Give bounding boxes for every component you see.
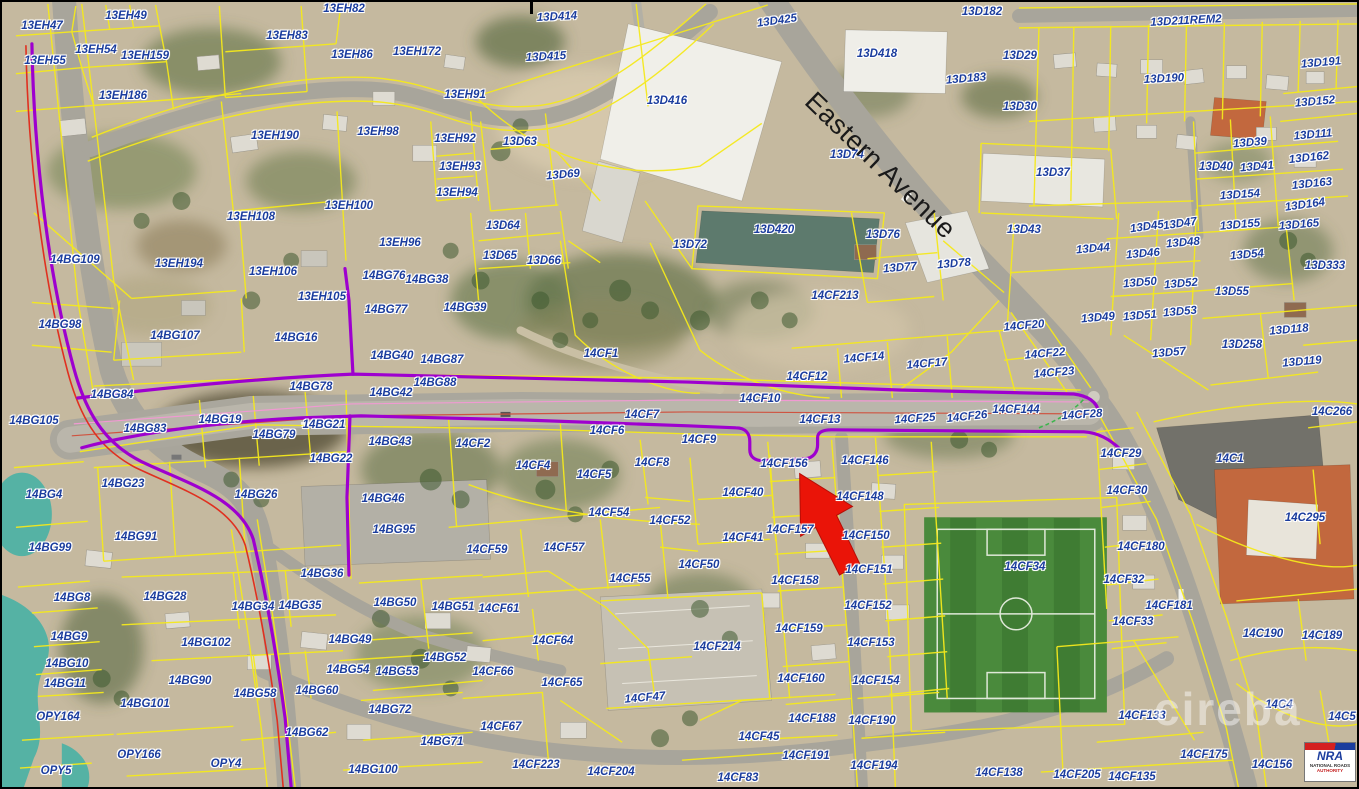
map-canvas: 13EH4713EH4913EH5413EH5513EH15913EH8313E…	[0, 0, 1359, 789]
map-edge-tick	[530, 2, 533, 14]
soccer-field	[924, 517, 1106, 712]
nra-logo-line2: AUTHORITY	[1305, 768, 1355, 773]
nra-logo: NRA NATIONAL ROADS AUTHORITY	[1304, 742, 1356, 782]
watermark-text: cireba	[1154, 682, 1302, 736]
map-graphic	[2, 2, 1357, 787]
nra-logo-abbr: NRA	[1305, 750, 1355, 763]
